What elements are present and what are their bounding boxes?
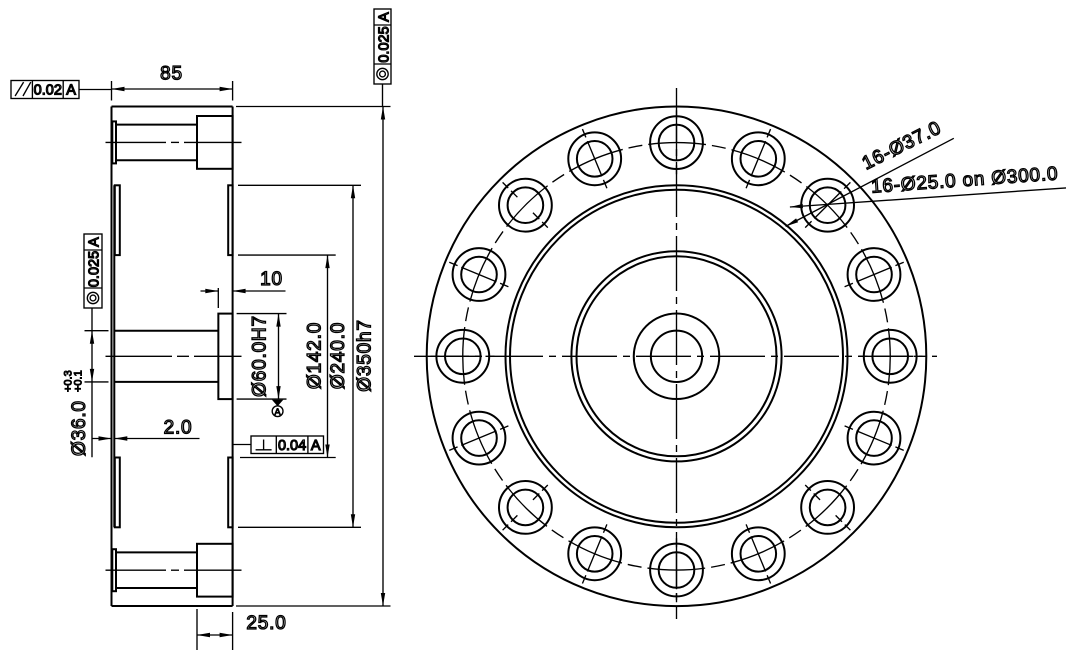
svg-text:A: A	[87, 237, 103, 247]
svg-text:Ø350h7: Ø350h7	[355, 319, 376, 391]
svg-text:2.0: 2.0	[164, 418, 193, 439]
svg-text:85: 85	[160, 64, 183, 85]
svg-text:A: A	[377, 12, 393, 22]
svg-text:Ø240.0: Ø240.0	[328, 322, 349, 389]
svg-text:A: A	[274, 407, 281, 418]
svg-text:0.02: 0.02	[34, 83, 62, 99]
svg-text:25.0: 25.0	[246, 613, 286, 634]
svg-text:A: A	[311, 438, 321, 454]
svg-text:Ø60.0H7: Ø60.0H7	[250, 315, 271, 397]
svg-text:Ø36.0: Ø36.0	[69, 400, 90, 456]
svg-text:0.025: 0.025	[87, 251, 103, 287]
svg-text:+0.1: +0.1	[73, 370, 85, 392]
svg-text:0.04: 0.04	[278, 438, 306, 454]
svg-text:Ø142.0: Ø142.0	[305, 322, 326, 389]
svg-text:0.025: 0.025	[377, 26, 393, 62]
svg-text:10: 10	[260, 269, 283, 290]
svg-text:A: A	[66, 83, 76, 99]
